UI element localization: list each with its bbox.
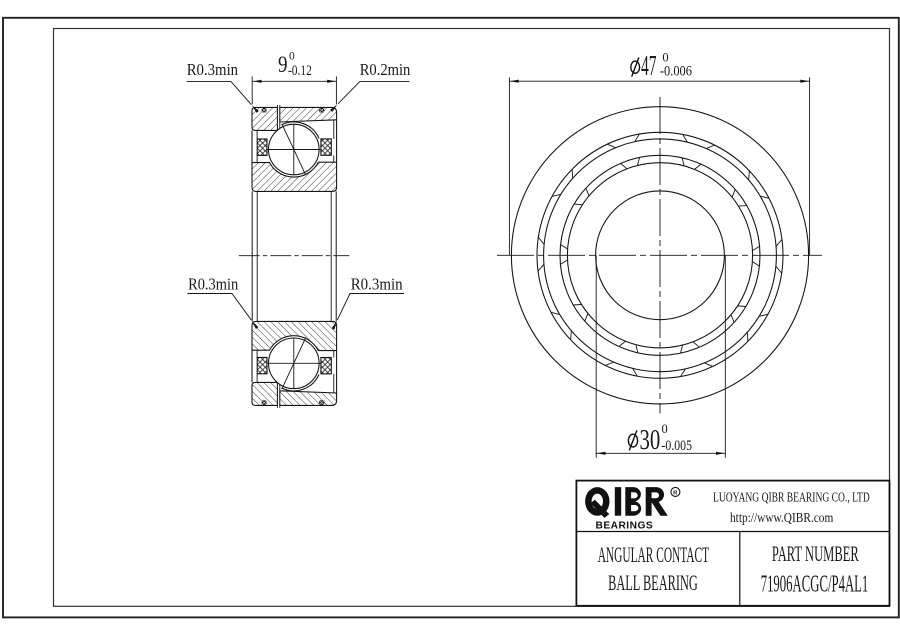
svg-text:R0.2min: R0.2min: [360, 60, 411, 79]
svg-text:9: 9: [278, 52, 288, 77]
svg-text:47: 47: [641, 51, 657, 82]
svg-text:PART NUMBER: PART NUMBER: [772, 541, 859, 566]
svg-text:ANGULAR CONTACT: ANGULAR CONTACT: [598, 542, 710, 567]
svg-text:-0.005: -0.005: [662, 438, 693, 454]
svg-text:R0.3min: R0.3min: [187, 60, 238, 79]
svg-text:-0.12: -0.12: [288, 63, 312, 79]
svg-text:http://www.QIBR.com: http://www.QIBR.com: [730, 511, 833, 526]
svg-text:0: 0: [289, 51, 295, 63]
svg-text:0: 0: [662, 422, 668, 436]
svg-text:30: 30: [640, 424, 661, 456]
svg-text:0: 0: [662, 51, 668, 65]
svg-text:R: R: [673, 491, 678, 497]
svg-text:BALL BEARING: BALL BEARING: [608, 570, 698, 595]
svg-text:BEARINGS: BEARINGS: [596, 520, 653, 531]
svg-text:-0.006: -0.006: [660, 64, 692, 80]
svg-text:LUOYANG QIBR BEARING CO., LTD: LUOYANG QIBR BEARING CO., LTD: [713, 491, 870, 506]
svg-text:R0.3min: R0.3min: [188, 275, 238, 294]
svg-text:R0.3min: R0.3min: [351, 275, 403, 294]
svg-text:71906ACGC/P4AL1: 71906ACGC/P4AL1: [761, 571, 869, 597]
